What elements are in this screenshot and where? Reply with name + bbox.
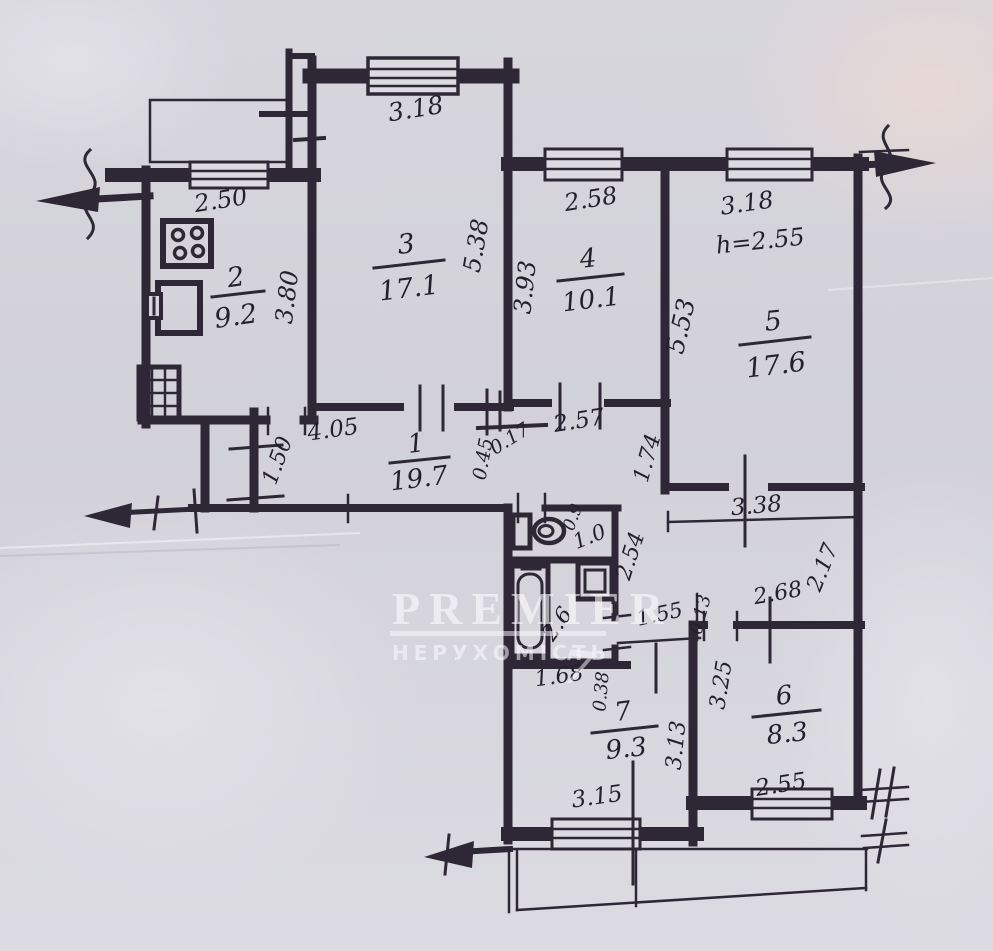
dim-038: 0.38 [589,671,613,713]
room5-number: 5 [763,305,783,338]
room4-number: 4 [577,243,598,275]
room6-area: 8.3 [765,717,809,751]
room3-number: 3 [396,228,416,261]
room3-window-icon [368,58,458,94]
watermark-rule [390,631,606,636]
watermark-brand: PREMIER [392,583,672,634]
room6-number: 6 [774,680,794,712]
room7-window-icon [552,819,640,849]
room5-window-icon [727,149,812,180]
room7-area: 9.3 [604,732,648,766]
dim-room4-depth: 3.93 [508,259,541,315]
dim-338: 3.38 [730,491,783,521]
room4-window-icon [545,149,622,180]
dim-room7-depth: 3.13 [662,720,692,771]
floor-plan-drawing: 2.50 3.80 3.18 5.38 2.58 3.93 3.18 h=2.5… [0,0,993,951]
watermark-logo-glyph: 7 [559,639,596,696]
scanned-floor-plan-page: 2.50 3.80 3.18 5.38 2.58 3.93 3.18 h=2.5… [0,0,993,951]
room2-area: 9.2 [212,298,259,335]
